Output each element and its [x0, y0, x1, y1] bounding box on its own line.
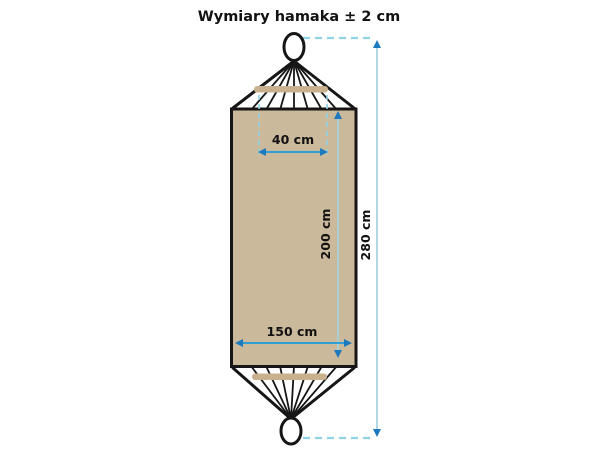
rope-line: [266, 61, 294, 110]
arrow-down-icon: [373, 429, 381, 437]
rope-line: [233, 61, 294, 108]
total-length-label: 280 cm: [358, 210, 373, 261]
dimension-total-length: 280 cm: [358, 40, 381, 437]
hammock-dimension-diagram: Wymiary hamaka ± 2 cm 280 cm: [0, 0, 600, 450]
fabric-length-label: 200 cm: [318, 209, 333, 260]
fabric-width-label: 150 cm: [267, 324, 318, 339]
diagram-svg: Wymiary hamaka ± 2 cm 280 cm: [0, 0, 600, 450]
bottom-ring: [281, 418, 301, 444]
spreader-bar-top: [254, 86, 328, 93]
bar-width-label: 40 cm: [272, 132, 314, 147]
rope-line: [294, 61, 354, 108]
arrow-up-icon: [373, 40, 381, 48]
rope-line: [294, 61, 322, 110]
diagram-title: Wymiary hamaka ± 2 cm: [198, 9, 400, 25]
top-ring: [284, 34, 304, 61]
top-rope-fan: [233, 61, 354, 110]
spreader-bar-bottom: [252, 374, 327, 381]
